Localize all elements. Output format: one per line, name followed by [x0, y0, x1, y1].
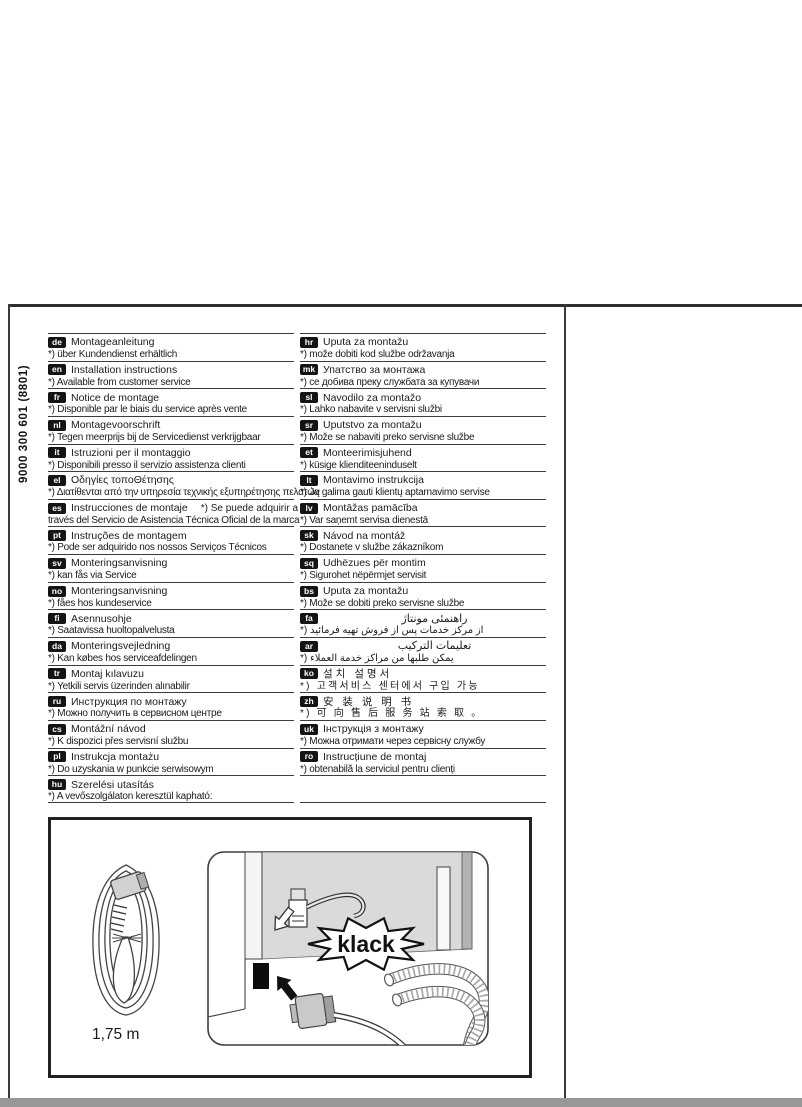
language-title-line: hr Uputa za montažu [300, 336, 546, 350]
page-fold-divider [564, 304, 566, 1100]
language-code-badge: pt [48, 530, 66, 541]
language-entry: ru Инструкция по монтажу *) Можно получи… [48, 692, 294, 720]
language-entry: cs Montážní návod *) K dispozici přes se… [48, 720, 294, 748]
language-entry: sv Monteringsanvisning *) kan fås via Se… [48, 554, 294, 582]
language-code-badge: ar [300, 641, 318, 652]
language-title: Uputa za montažu [323, 336, 408, 348]
language-code-badge: bs [300, 586, 318, 597]
language-title-line: ru Инструкция по монтажу [48, 695, 294, 709]
language-entry: ko 설치 설명서 *) 고객서비스 센터에서 구입 가능 [300, 665, 546, 693]
language-title-line: ko 설치 설명서 [300, 667, 546, 681]
language-title-line: tr Montaj kılavuzu [48, 667, 294, 681]
page-top-rule [8, 304, 802, 307]
document-code-vertical: 9000 300 601 (8801) [18, 331, 30, 483]
language-note: *) се добива преку службата за купувачи [300, 377, 546, 389]
language-title: Instrucciones de montaje [71, 502, 188, 514]
language-title-line: fr Notice de montage [48, 391, 294, 405]
language-title: Montážní návod [71, 723, 146, 735]
language-entry: de Montageanleitung *) über Kundendienst… [48, 333, 294, 361]
language-note: *) Διατίθενται από την υπηρεσία τεχνικής… [48, 487, 294, 499]
language-entry: tr Montaj kılavuzu *) Yetkili servis üze… [48, 665, 294, 693]
language-title: Uputstvo za montažu [323, 419, 422, 431]
language-title-line: el Οδηγίες τοποΘέτησης [48, 474, 294, 488]
language-entry: ar تعليمات التركيب *) يمكن طلبها من مراك… [300, 637, 546, 665]
language-entry: mk Упатство за монтажа *) се добива прек… [300, 361, 546, 389]
language-entry: lt Montavimo instrukcija *) Ją galima ga… [300, 471, 546, 499]
language-title-line: ro Instrucțiune de montaj [300, 750, 546, 764]
plug-socket-slot [253, 963, 269, 989]
language-title: تعليمات التركيب [323, 640, 546, 652]
language-title-line: mk Упатство за монтажа [300, 363, 546, 377]
language-code-badge: zh [300, 696, 318, 707]
language-title-line: et Monteerimisjuhend [300, 446, 546, 460]
language-entry: es Instrucciones de montaje *) Se puede … [48, 499, 294, 527]
language-note: *) 고객서비스 센터에서 구입 가능 [300, 681, 546, 693]
language-title-line: sk Návod na montáž [300, 529, 546, 543]
language-title-line: de Montageanleitung [48, 336, 294, 350]
language-code-badge: lt [300, 475, 318, 486]
language-title: Montāžas pamācība [323, 502, 418, 514]
language-note: *) Disponibili presso il servizio assist… [48, 460, 294, 472]
language-note: *) Available from customer service [48, 377, 294, 389]
language-note: *) Kan købes hos serviceafdelingen [48, 653, 294, 665]
language-title: Navodilo za montažo [323, 392, 421, 404]
language-entry: fi Asennusohje *) Saatavissa huoltopalve… [48, 609, 294, 637]
language-title: Monteerimisjuhend [323, 447, 412, 459]
language-title: Montageanleitung [71, 336, 154, 348]
language-title-line: no Monteringsanvisning [48, 584, 294, 598]
language-entry: ro Instrucțiune de montaj *) obtenabilă … [300, 748, 546, 776]
language-title-line: nl Montagevoorschrift [48, 418, 294, 432]
klack-label: klack [337, 931, 395, 957]
language-note: *) Može se dobiti preko servisne službe [300, 598, 546, 610]
language-title: Uputa za montažu [323, 585, 408, 597]
language-title: Istruzioni per il montaggio [71, 447, 191, 459]
language-title-line [300, 778, 546, 792]
language-title: Οδηγίες τοποΘέτησης [71, 474, 174, 486]
language-title: Інструкція з монтажу [323, 723, 424, 735]
language-note: través del Servicio de Asistencia Técnic… [48, 515, 294, 527]
language-entry: fr Notice de montage *) Disponible par l… [48, 388, 294, 416]
language-code-badge: ko [300, 668, 318, 679]
language-note: *) Можна отримати через сервісну службу [300, 736, 546, 748]
language-entry: sk Návod na montáž *) Dostanete v službe… [300, 526, 546, 554]
language-code-badge: sl [300, 392, 318, 403]
language-title-note: *) Se puede adquirir a [201, 503, 298, 514]
language-code-badge: uk [300, 724, 318, 735]
language-title-line: bs Uputa za montažu [300, 584, 546, 598]
language-entry: bs Uputa za montažu *) Može se dobiti pr… [300, 582, 546, 610]
language-title: Instruções de montagem [71, 530, 187, 542]
language-note: *) über Kundendienst erhältlich [48, 349, 294, 361]
language-code-badge: it [48, 447, 66, 458]
appliance-right-rail [437, 867, 450, 950]
language-title-line: sq Udhëzues për montim [300, 557, 546, 571]
language-title: 설치 설명서 [323, 668, 392, 680]
language-title: Упатство за монтажа [323, 364, 425, 376]
language-note: *) kan fås via Service [48, 570, 294, 582]
language-code-badge: da [48, 641, 66, 652]
language-note: *) Можно получить в сервисном центре [48, 708, 294, 720]
language-entry: da Monteringsvejledning *) Kan købes hos… [48, 637, 294, 665]
language-note: *) Može se nabaviti preko servisne služb… [300, 432, 546, 444]
language-note: *) A vevőszolgálaton keresztül kapható: [48, 791, 294, 803]
language-code-badge: el [48, 475, 66, 486]
language-note: *) K dispozici přes servisní službu [48, 736, 294, 748]
language-entry: pt Instruções de montagem *) Pode ser ad… [48, 526, 294, 554]
language-code-badge: hr [300, 337, 318, 348]
language-title: راهنمئی مونتاژ [323, 613, 546, 625]
language-title-line: uk Інструкція з монтажу [300, 722, 546, 736]
language-title-line: lt Montavimo instrukcija [300, 474, 546, 488]
language-title: Monteringsanvisning [71, 585, 167, 597]
language-code-badge: fr [48, 392, 66, 403]
language-code-badge: tr [48, 668, 66, 679]
language-title: Montagevoorschrift [71, 419, 160, 431]
language-entry: sl Navodilo za montažo *) Lahko nabavite… [300, 388, 546, 416]
language-entry: lv Montāžas pamācība *) Var saņemt servi… [300, 499, 546, 527]
language-title: 安 装 说 明 书 [323, 696, 414, 708]
language-column-left: de Montageanleitung *) über Kundendienst… [48, 333, 294, 803]
language-title: Инструкция по монтажу [71, 696, 187, 708]
language-code-badge: hu [48, 779, 66, 790]
language-entry: it Istruzioni per il montaggio *) Dispon… [48, 444, 294, 472]
language-title: Monteringsvejledning [71, 640, 170, 652]
language-entry: sq Udhëzues për montim *) Sigurohet nëpë… [300, 554, 546, 582]
language-note: *) obtenabilă la serviciul pentru clienț… [300, 764, 546, 776]
language-note: *) Yetkili servis üzerinden alınabilir [48, 681, 294, 693]
language-entry: sr Uputstvo za montažu *) Može se nabavi… [300, 416, 546, 444]
language-title-line: pl Instrukcja montażu [48, 750, 294, 764]
language-entry: en Installation instructions *) Availabl… [48, 361, 294, 389]
language-code-badge: en [48, 364, 66, 375]
language-title-line: lv Montāžas pamācība [300, 501, 546, 515]
language-entry: hu Szerelési utasítás *) A vevőszolgálat… [48, 775, 294, 803]
language-note: *) Do uzyskania w punkcie serwisowym [48, 764, 294, 776]
language-code-badge: fa [300, 613, 318, 624]
cord-length-label: 1,75 m [92, 1026, 139, 1043]
language-code-badge: et [300, 447, 318, 458]
language-code-badge: sv [48, 558, 66, 569]
language-entry: zh 安 装 说 明 书 *) 可 向 售 后 服 务 站 索 取 。 [300, 692, 546, 720]
language-entry: pl Instrukcja montażu *) Do uzyskania w … [48, 748, 294, 776]
language-code-badge: ru [48, 696, 66, 707]
language-title-line: fi Asennusohje [48, 612, 294, 626]
language-code-badge: de [48, 337, 66, 348]
language-title-line: it Istruzioni per il montaggio [48, 446, 294, 460]
language-title-line: sr Uputstvo za montažu [300, 418, 546, 432]
language-note: *) Ją galima gauti klientų aptarnavimo s… [300, 487, 546, 499]
language-note: *) Disponible par le biais du service ap… [48, 404, 294, 416]
language-note: *) يمكن طلبها من مراكز خدمة العملاء [300, 653, 546, 665]
language-code-badge: no [48, 586, 66, 597]
language-entry: no Monteringsanvisning *) fåes hos kunde… [48, 582, 294, 610]
language-column-right: hr Uputa za montažu *) može dobiti kod s… [300, 333, 546, 803]
language-title-line: fa راهنمئی مونتاژ [300, 612, 546, 626]
installation-figure: 1,75 m [48, 817, 532, 1078]
language-note: *) Saatavissa huoltopalvelusta [48, 625, 294, 637]
language-code-badge: pl [48, 751, 66, 762]
language-title: Szerelési utasítás [71, 779, 154, 791]
language-title-line: pt Instruções de montagem [48, 529, 294, 543]
language-entry: hr Uputa za montažu *) može dobiti kod s… [300, 333, 546, 361]
language-code-badge: lv [300, 503, 318, 514]
language-note: *) fåes hos kundeservice [48, 598, 294, 610]
language-entry: uk Інструкція з монтажу *) Можна отримат… [300, 720, 546, 748]
language-title-line: sv Monteringsanvisning [48, 557, 294, 571]
language-entry: nl Montagevoorschrift *) Tegen meerprijs… [48, 416, 294, 444]
language-title: Notice de montage [71, 392, 159, 404]
language-title-line: da Monteringsvejledning [48, 640, 294, 654]
page-bottom-edge [0, 1098, 802, 1107]
language-note: *) از مرکز خدمات پس از فروش تهیه فرمائید [300, 625, 546, 637]
manual-page: 9000 300 601 (8801) de Montageanleitung … [0, 0, 802, 1107]
language-entry: fa راهنمئی مونتاژ *) از مرکز خدمات پس از… [300, 609, 546, 637]
language-title: Instrucțiune de montaj [323, 751, 426, 763]
language-note: *) küsige klienditeeninduselt [300, 460, 546, 472]
language-note: *) može dobiti kod službe održavanja [300, 349, 546, 361]
language-title: Udhëzues për montim [323, 557, 426, 569]
language-entry: et Monteerimisjuhend *) küsige kliendite… [300, 444, 546, 472]
language-title: Asennusohje [71, 613, 132, 625]
language-code-badge: cs [48, 724, 66, 735]
appliance-left-rail [245, 852, 262, 959]
language-note: *) Pode ser adquirido nos nossos Serviço… [48, 542, 294, 554]
language-title-line: zh 安 装 说 明 书 [300, 695, 546, 709]
language-note: *) Tegen meerprijs bij de Servicedienst … [48, 432, 294, 444]
language-title: Montavimo instrukcija [323, 474, 424, 486]
language-note: *) Lahko nabavite v servisni službi [300, 404, 546, 416]
language-code-badge: sq [300, 558, 318, 569]
language-title-line: hu Szerelési utasítás [48, 778, 294, 792]
language-title: Monteringsanvisning [71, 557, 167, 569]
language-title-line: en Installation instructions [48, 363, 294, 377]
language-code-badge: nl [48, 420, 66, 431]
appliance-right-rail-dark [462, 852, 472, 949]
language-code-badge: mk [300, 364, 318, 375]
language-title: Instrukcja montażu [71, 751, 159, 763]
language-note: *) Dostanete v službe zákazníkom [300, 542, 546, 554]
language-title-line: cs Montážní návod [48, 722, 294, 736]
language-code-badge: ro [300, 751, 318, 762]
language-title: Montaj kılavuzu [71, 668, 144, 680]
language-code-badge: es [48, 503, 66, 514]
language-note: *) Var saņemt servisa dienestā [300, 515, 546, 527]
language-note: *) 可 向 售 后 服 务 站 索 取 。 [300, 708, 546, 720]
language-title-line: sl Navodilo za montažo [300, 391, 546, 405]
language-note: *) Sigurohet nëpërmjet servisit [300, 570, 546, 582]
language-entry: el Οδηγίες τοποΘέτησης *) Διατίθενται απ… [48, 471, 294, 499]
page-left-rule [8, 304, 10, 1100]
language-title: Installation instructions [71, 364, 177, 376]
language-entry [300, 775, 546, 803]
language-code-badge: sk [300, 530, 318, 541]
language-title-line: es Instrucciones de montaje *) Se puede … [48, 501, 294, 515]
language-title-line: ar تعليمات التركيب [300, 640, 546, 654]
language-title: Návod na montáž [323, 530, 405, 542]
language-code-badge: fi [48, 613, 66, 624]
language-code-badge: sr [300, 420, 318, 431]
